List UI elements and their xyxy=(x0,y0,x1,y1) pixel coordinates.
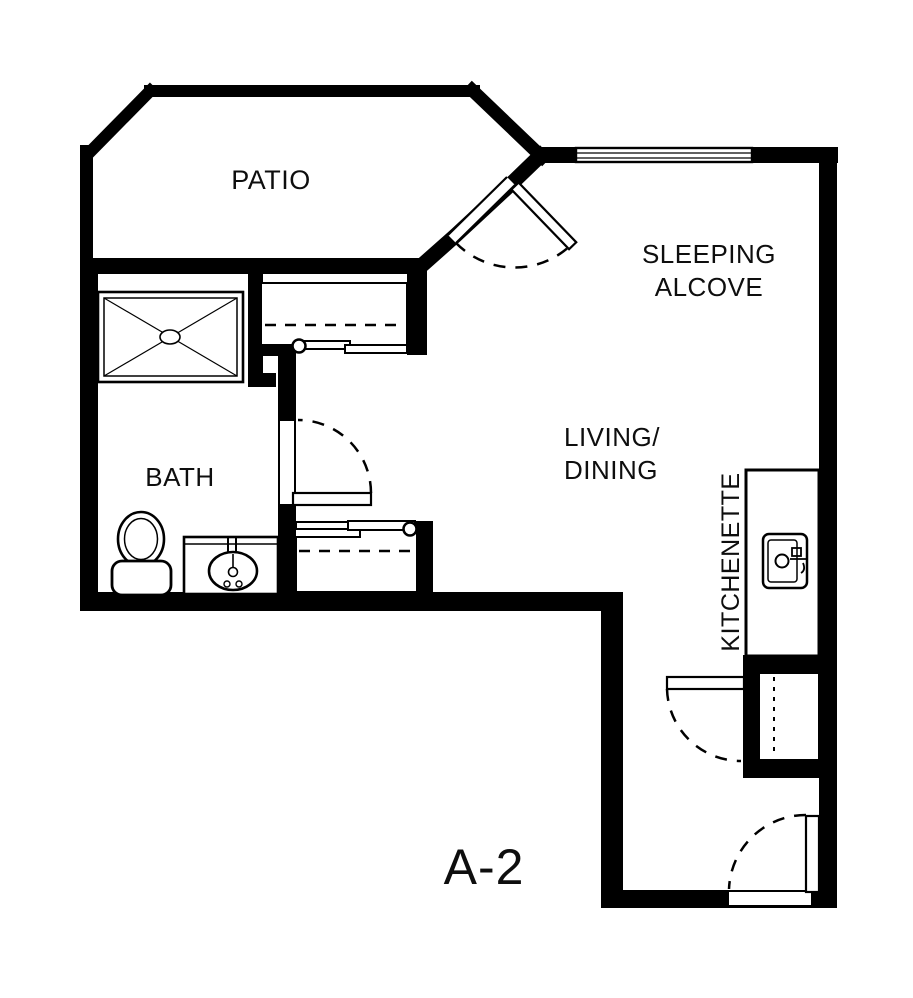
wall-closet1-right xyxy=(407,258,427,355)
wall-left xyxy=(80,258,98,611)
patio-door-swing-arc xyxy=(456,243,571,268)
wall-patio-angle-right xyxy=(472,90,542,157)
toilet-tank xyxy=(112,561,171,595)
living-dining-label-line1: LIVING/ xyxy=(564,422,660,452)
wall-closet2-right xyxy=(417,521,433,593)
wall-patio-angle-left xyxy=(91,91,150,151)
shower-drain xyxy=(160,330,180,344)
vanity-sink xyxy=(184,536,278,594)
wall-patio-bottom xyxy=(80,258,427,274)
storage-closet-door xyxy=(667,677,744,761)
upper-closet xyxy=(261,283,407,353)
entry-door-leaf xyxy=(806,816,819,892)
sleeping-alcove-label-line1: SLEEPING xyxy=(642,239,776,269)
lower-closet-knob xyxy=(404,523,417,536)
floor-plan-page: PATIO SLEEPING ALCOVE LIVING/ DINING BAT… xyxy=(0,0,913,998)
upper-closet-knob xyxy=(293,340,306,353)
toilet xyxy=(112,512,171,595)
shower xyxy=(98,292,243,382)
patio-door-leaf xyxy=(511,183,576,250)
kitchenette-sink xyxy=(763,534,807,588)
wall-utility-bottom xyxy=(743,760,837,778)
storage-closet-door-leaf xyxy=(667,677,744,689)
sleeping-alcove-label-line2: ALCOVE xyxy=(655,272,764,302)
wall-lower-left xyxy=(601,592,623,908)
storage-closet-door-swing-arc xyxy=(667,689,741,761)
upper-closet-slider-panel-2 xyxy=(345,345,407,353)
wall-shower-closet-divider-foot xyxy=(248,373,276,387)
room-labels: PATIO SLEEPING ALCOVE LIVING/ DINING BAT… xyxy=(145,165,776,895)
bath-door-swing-arc xyxy=(298,420,371,493)
bath-door xyxy=(279,420,371,505)
wall-right xyxy=(819,147,837,908)
entry-door-threshold xyxy=(728,891,812,906)
wall-kitchenette-bottom xyxy=(743,655,820,672)
wall-bath-upper xyxy=(278,340,296,420)
floor-plan-drawing: PATIO SLEEPING ALCOVE LIVING/ DINING BAT… xyxy=(0,0,913,998)
patio-door xyxy=(448,177,576,268)
upper-closet-slider-panel-1 xyxy=(300,341,350,349)
lower-closet xyxy=(295,521,417,592)
sleeping-alcove-window xyxy=(576,148,752,162)
entry-door xyxy=(728,815,819,906)
wall-bath-lower xyxy=(278,505,296,592)
bath-label: BATH xyxy=(145,462,214,492)
patio-label: PATIO xyxy=(231,165,311,195)
unit-label: A-2 xyxy=(444,839,525,895)
kitchenette-label: KITCHENETTE xyxy=(717,472,745,651)
utility-closet xyxy=(759,673,819,760)
wall-utility-left xyxy=(743,672,759,762)
wall-patio-left xyxy=(80,145,93,263)
entry-door-swing-arc xyxy=(729,815,806,889)
patio-door-opening xyxy=(452,181,511,239)
living-dining-label-line2: DINING xyxy=(564,455,658,485)
bath-door-leaf xyxy=(293,493,371,505)
